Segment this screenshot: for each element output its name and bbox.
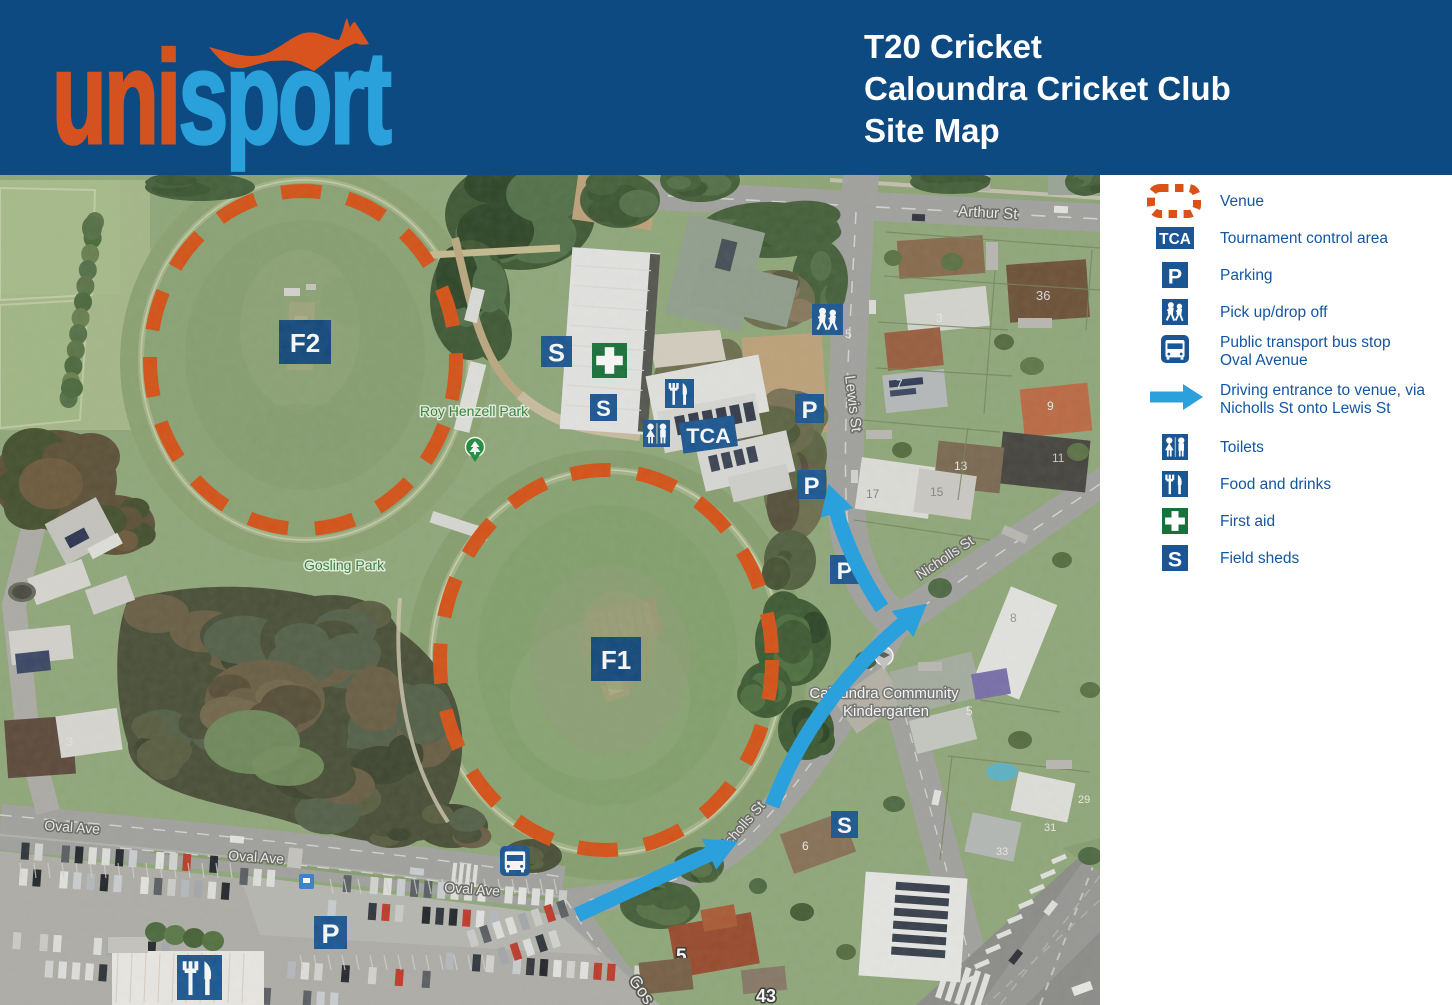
svg-text:Pick up/drop off: Pick up/drop off <box>1220 304 1328 321</box>
svg-text:P: P <box>1168 264 1182 288</box>
svg-text:Site Map: Site Map <box>864 112 1000 149</box>
svg-text:Food and drinks: Food and drinks <box>1220 476 1331 493</box>
svg-text:Tournament control area: Tournament control area <box>1220 230 1388 247</box>
svg-text:unisport: unisport <box>52 24 391 171</box>
svg-text:Oval Avenue: Oval Avenue <box>1220 352 1308 369</box>
svg-text:Parking: Parking <box>1220 267 1273 284</box>
svg-text:S: S <box>1168 547 1182 571</box>
svg-text:Venue: Venue <box>1220 193 1264 210</box>
svg-text:First aid: First aid <box>1220 513 1275 530</box>
svg-text:Caloundra Cricket Club: Caloundra Cricket Club <box>864 70 1231 107</box>
svg-text:Toilets: Toilets <box>1220 439 1264 456</box>
svg-text:Driving entrance to venue, via: Driving entrance to venue, via <box>1220 382 1425 399</box>
svg-text:TCA: TCA <box>1159 231 1191 248</box>
svg-text:T20 Cricket: T20 Cricket <box>864 28 1042 65</box>
svg-text:Field sheds: Field sheds <box>1220 550 1300 567</box>
svg-text:Nicholls St onto Lewis St: Nicholls St onto Lewis St <box>1220 400 1391 417</box>
svg-text:Public transport bus stop: Public transport bus stop <box>1220 334 1391 351</box>
